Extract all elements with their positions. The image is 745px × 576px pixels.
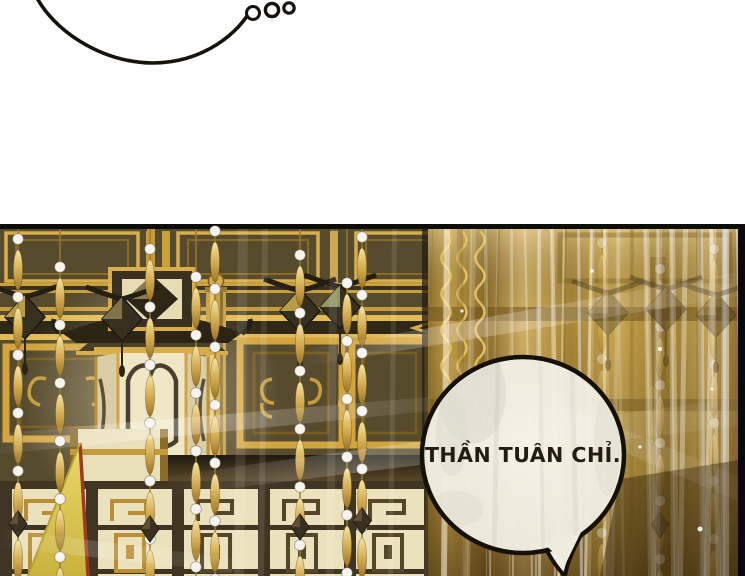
panel-border-top <box>0 224 745 229</box>
comic-panel: THẦN TUÂN CHỈ. <box>0 224 745 576</box>
offscreen-bubble-arc <box>36 0 250 63</box>
bubble-trail-circle-icon <box>265 3 278 16</box>
offscreen-speech-bubble <box>0 0 745 224</box>
comic-page: THẦN TUÂN CHỈ. <box>0 0 745 576</box>
panel-edge-right <box>738 229 745 576</box>
page-gutter <box>0 0 745 224</box>
speech-bubble-text: THẦN TUÂN CHỈ. <box>425 439 621 467</box>
bubble-trail-loop-icon <box>247 7 260 20</box>
bubble-trail-circle-icon <box>284 3 294 13</box>
